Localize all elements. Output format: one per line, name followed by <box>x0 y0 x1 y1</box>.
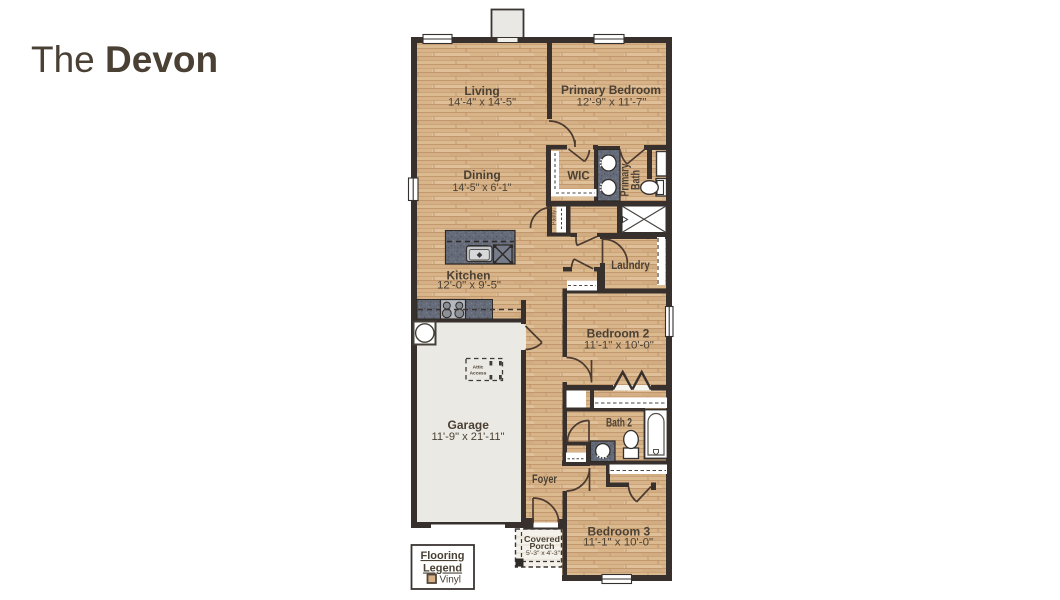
svg-text:Bath: Bath <box>631 170 643 190</box>
svg-text:Attic: Attic <box>473 365 484 371</box>
svg-text:The Devon: The Devon <box>31 39 218 80</box>
svg-text:11'-9" x 21'-11": 11'-9" x 21'-11" <box>432 431 505 443</box>
svg-text:Legend: Legend <box>423 563 462 575</box>
svg-text:12'-9" x 11'-7": 12'-9" x 11'-7" <box>577 96 647 108</box>
svg-text:Dining: Dining <box>463 168 500 182</box>
svg-text:12'-0" x 9'-5": 12'-0" x 9'-5" <box>437 280 501 292</box>
svg-text:Foyer: Foyer <box>532 474 557 486</box>
svg-text:WIC: WIC <box>567 171 589 183</box>
svg-text:11'-1" x 10'-0": 11'-1" x 10'-0" <box>583 536 653 548</box>
svg-text:14'-5" x 6'-1": 14'-5" x 6'-1" <box>453 182 512 194</box>
svg-text:Flooring: Flooring <box>421 550 465 562</box>
svg-text:11'-1" x 10'-0": 11'-1" x 10'-0" <box>584 339 654 351</box>
svg-text:Access: Access <box>470 371 487 377</box>
svg-text:14'-4" x 14'-5": 14'-4" x 14'-5" <box>448 97 516 109</box>
svg-text:Pantry: Pantry <box>552 210 558 225</box>
svg-text:Primary Bedroom: Primary Bedroom <box>561 83 661 97</box>
svg-text:Laundry: Laundry <box>611 260 650 272</box>
svg-text:Vinyl: Vinyl <box>440 575 462 586</box>
svg-text:Bath 2: Bath 2 <box>606 418 632 430</box>
svg-text:5'-3" x 4'-3": 5'-3" x 4'-3" <box>526 550 560 557</box>
